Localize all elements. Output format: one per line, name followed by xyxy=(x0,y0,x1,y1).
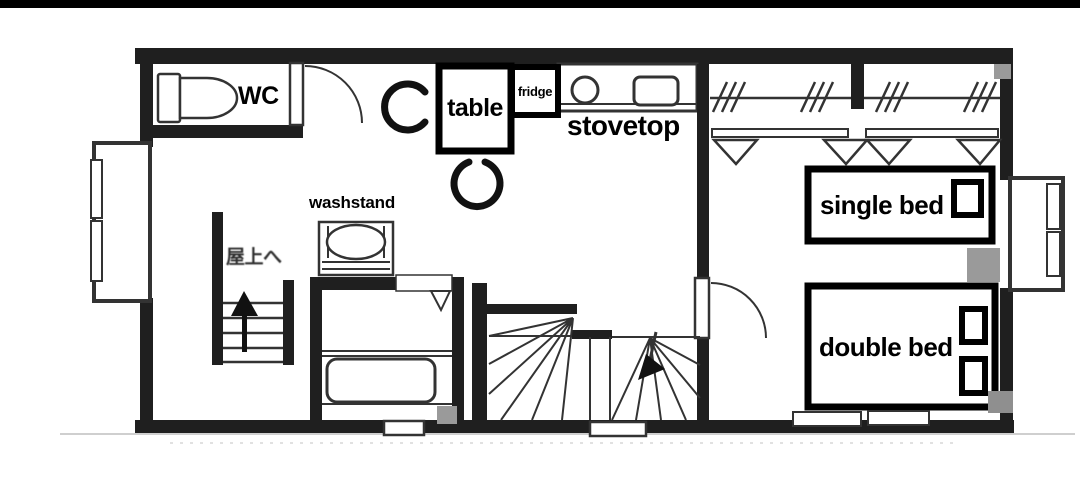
wc-door-swing-icon xyxy=(290,63,362,125)
gray-square-marker xyxy=(967,248,1000,282)
wc-label: WC xyxy=(238,84,279,109)
roof-stair-icon xyxy=(212,212,294,365)
chair-icon xyxy=(454,162,500,207)
sink-burner-icon xyxy=(572,77,598,103)
bay-window-left xyxy=(91,143,150,301)
table-label: table xyxy=(439,66,511,151)
wc-room-walls xyxy=(140,125,303,138)
bathroom-door-opening xyxy=(396,275,452,291)
bedroom-partition-wall xyxy=(697,64,709,420)
stair-treads-left xyxy=(489,318,573,420)
floor-plan-photo: WC table fridge stovetop washstand 屋上へ s… xyxy=(0,0,1080,481)
kitchen-counter xyxy=(558,64,697,111)
bay-window-right xyxy=(1010,178,1063,290)
to-rooftop-label: 屋上へ xyxy=(226,248,282,267)
stair-treads-right xyxy=(612,338,700,420)
scan-artifact-line xyxy=(60,434,1075,443)
bedroom-bottom-windows xyxy=(793,411,929,426)
closet xyxy=(710,64,1011,164)
bedroom-door-swing-icon xyxy=(695,278,766,338)
washstand-label: washstand xyxy=(309,194,395,211)
single-bed-label: single bed xyxy=(808,169,970,241)
bathtub-icon xyxy=(327,359,435,402)
double-bed-label: double bed xyxy=(808,286,971,407)
chair-icon xyxy=(385,84,425,130)
gray-square-marker xyxy=(988,391,1013,413)
fridge-label: fridge xyxy=(512,67,558,115)
washstand-icon xyxy=(319,222,393,275)
folding-door-icons xyxy=(714,140,1000,164)
door-flag-icon xyxy=(431,291,450,310)
closet-divider-wall xyxy=(851,64,864,109)
gray-square-marker xyxy=(994,64,1011,79)
bathroom xyxy=(310,275,464,422)
stovetop-label: stovetop xyxy=(567,112,680,140)
closet-shelf-edges xyxy=(712,129,998,137)
toilet-icon xyxy=(158,74,237,122)
gray-square-marker xyxy=(437,406,457,424)
winder-stair-icon xyxy=(472,283,700,422)
stove-icon xyxy=(634,77,678,105)
